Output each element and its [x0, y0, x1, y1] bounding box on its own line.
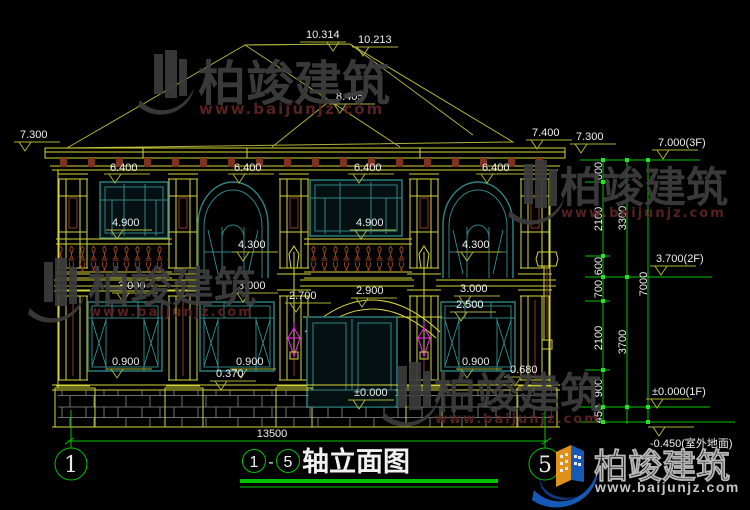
watermarks: 柏竣建筑 www.baijunjz.com 柏竣建筑 www.baijunjz.…	[28, 50, 740, 507]
dim-sill-left: 0.900	[112, 356, 140, 368]
dim-eave-3: 6.400	[354, 162, 382, 174]
dim-window-43-left: 4.300	[238, 239, 266, 251]
watermark-site: www.baijunjz.com	[199, 100, 384, 118]
watermark-bottom-right-logo: 柏竣建筑 www.baijunjz.com	[532, 445, 740, 507]
watermark-logo-icon	[28, 258, 84, 323]
dim-porch-peak: 2.900	[356, 285, 384, 297]
title-text: 轴立面图	[302, 446, 410, 478]
level-ridge-left: 10.314	[306, 29, 340, 41]
watermark-logo-icon	[138, 50, 194, 115]
dim-window-49-left: 4.900	[112, 217, 140, 229]
level-floor3: 7.000(3F)	[658, 137, 706, 149]
title-underline-thick	[240, 479, 498, 483]
watermark-brand: 柏竣建筑	[560, 163, 728, 212]
dim-porch-right: 2.500	[456, 299, 484, 311]
watermark-top-left: 柏竣建筑 www.baijunjz.com	[138, 50, 390, 118]
dim-sill-mid: 0.900	[236, 356, 264, 368]
watermark-site: www.baijunjz.com	[435, 412, 600, 427]
dim-porch-left: 2.700	[289, 290, 317, 302]
dim-30-right: 3.000	[460, 283, 488, 295]
dim-sill-right: 0.900	[462, 356, 490, 368]
watermark-brand: 柏竣建筑	[434, 369, 602, 418]
drawing-title: 1 - 5 轴立面图	[240, 446, 498, 487]
wall-lamp-right	[418, 246, 430, 359]
level-eave-left: 7.300	[20, 129, 48, 141]
level-eave-right-b: 7.300	[576, 131, 604, 143]
downspout-right	[536, 252, 558, 349]
level-floor2: 3.700(2F)	[656, 253, 704, 265]
level-ridge-right: 10.213	[358, 34, 392, 46]
axis-number-left: 1	[64, 453, 78, 478]
cad-canvas: 600 2100 600 700 2100 900 450 3300 3700 …	[0, 0, 750, 510]
dim-eave-4: 6.400	[482, 162, 510, 174]
roof-ridge	[245, 44, 350, 45]
window-2f-arch-right	[443, 182, 513, 278]
chain-700: 700	[593, 280, 605, 298]
chain-600b: 600	[593, 257, 605, 275]
watermark-site: www.baijunjz.com	[561, 206, 726, 221]
dim-window-49-center: 4.900	[356, 217, 384, 229]
chain-7000: 7000	[638, 272, 650, 296]
dim-eave-1: 6.400	[110, 162, 138, 174]
chain-3700: 3700	[617, 330, 629, 354]
dim-window-43-right: 4.300	[462, 239, 490, 251]
axis-number-right: 5	[538, 453, 552, 478]
logo-building-blue	[571, 445, 584, 482]
watermark-mid-right: 柏竣建筑 www.baijunjz.com	[508, 160, 728, 225]
logo-building-orange	[556, 445, 571, 487]
title-axis-end: 5	[284, 454, 293, 471]
level-eave-right-a: 7.400	[532, 127, 560, 139]
chain-2100b: 2100	[593, 326, 605, 350]
dim-eave-2: 6.400	[234, 162, 262, 174]
watermark-site: www.baijunjz.com	[89, 305, 254, 320]
dim-plinth-mid: 0.370	[216, 368, 244, 380]
dim-door-zero: ±0.000	[354, 387, 388, 399]
dim-total-width: 13500	[257, 428, 288, 440]
watermark-mid-left: 柏竣建筑 www.baijunjz.com	[28, 258, 256, 323]
title-dash: -	[268, 454, 273, 471]
elevation-drawing: 600 2100 600 700 2100 900 450 3300 3700 …	[0, 0, 750, 510]
watermark-site: www.baijunjz.com	[594, 479, 740, 495]
title-axis-start: 1	[250, 454, 259, 471]
level-floor1: ±0.000(1F)	[652, 386, 706, 398]
